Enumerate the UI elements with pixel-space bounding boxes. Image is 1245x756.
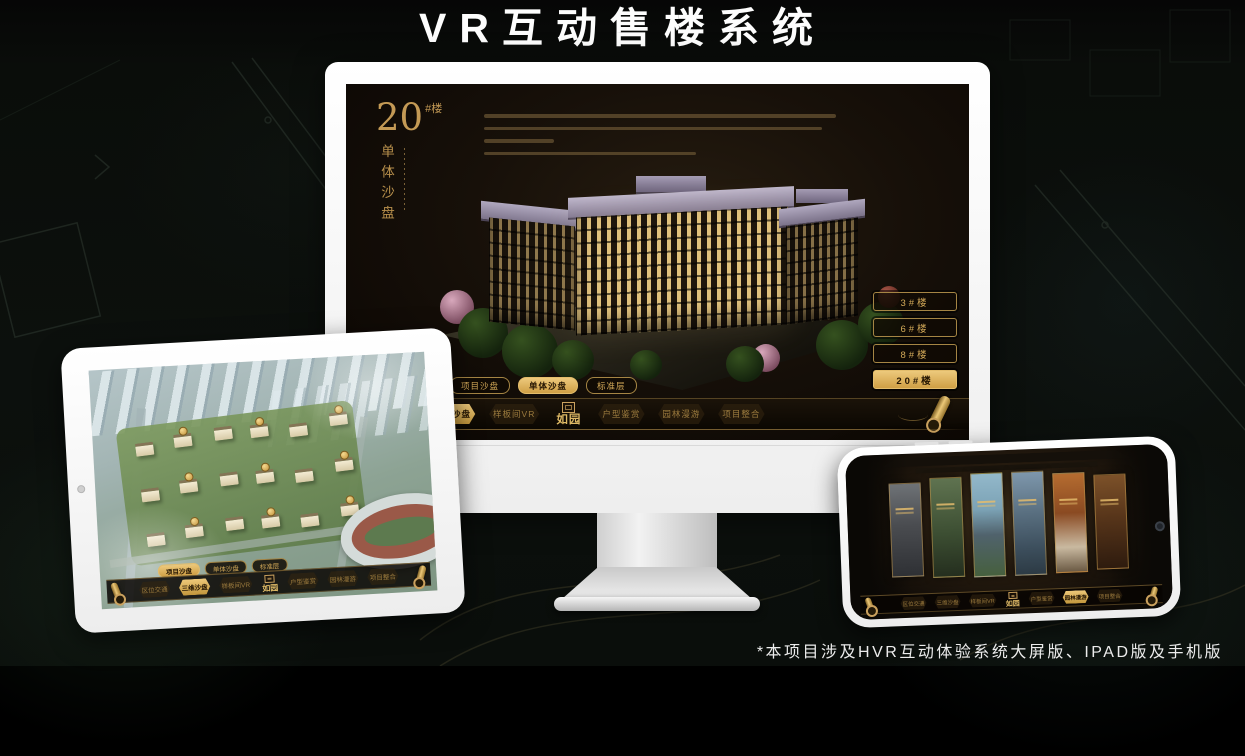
nav-item-garden-tour[interactable]: 园林漫游: [324, 570, 361, 588]
nav-item-garden-tour[interactable]: 园林漫游: [654, 404, 708, 424]
subtab-single-sandbox[interactable]: 单体沙盘: [518, 377, 578, 394]
floor-button-6[interactable]: 6#楼: [873, 318, 957, 337]
building-left-wing: [489, 217, 575, 330]
gallery-panel[interactable]: [1011, 471, 1047, 576]
vertical-caption-decor: [404, 148, 405, 210]
nav-item-showroom-vr[interactable]: 样板间VR: [966, 593, 999, 607]
building-main-facade: [576, 206, 788, 335]
brand-logo: 如园: [1005, 592, 1020, 608]
scroll-handle-right[interactable]: [1149, 586, 1159, 602]
seal-icon: [265, 574, 275, 583]
swoosh-decor: [898, 408, 928, 421]
ipad-camera-icon: [77, 485, 85, 493]
floor-button-20[interactable]: 20#楼: [873, 370, 957, 389]
seal-icon: [562, 402, 575, 413]
scroll-handle-right[interactable]: [415, 564, 427, 584]
nav-item-location[interactable]: 区位交通: [898, 596, 928, 610]
nav-item-showroom-vr[interactable]: 样板间VR: [485, 404, 543, 424]
gallery-panel[interactable]: [1052, 472, 1088, 573]
ipad-device: 项目沙盘 单体沙盘 标准层 区位交通 三维沙盘 样板间VR 如园 户型鉴赏 园林…: [60, 327, 465, 633]
seal-icon: [1008, 592, 1017, 599]
floor-button-8[interactable]: 8#楼: [873, 344, 957, 363]
building-block-title: 20#楼 单体沙盘: [376, 100, 442, 234]
sandbox-subtabs: 项目沙盘 单体沙盘 标准层: [450, 377, 637, 394]
floor-button-3[interactable]: 3#楼: [873, 292, 957, 311]
monitor-stand-base: [554, 597, 760, 611]
nav-item-floorplan[interactable]: 户型鉴赏: [594, 404, 648, 424]
footnote-text: *本项目涉及HVR互动体验系统大屏版、IPAD版及手机版: [757, 638, 1223, 662]
block-number-suffix: #楼: [425, 103, 442, 115]
gallery-panel[interactable]: [929, 477, 965, 578]
nav-item-project-info[interactable]: 项目整合: [364, 567, 401, 585]
nav-item-garden-tour[interactable]: 园林漫游: [1060, 590, 1090, 604]
nav-item-floorplan[interactable]: 户型鉴赏: [285, 572, 322, 590]
description-text-lines: [484, 114, 844, 164]
phone-screen: 区位交通 三维沙盘 样板间VR 如园 户型鉴赏 园林漫游 项目整合: [845, 444, 1173, 620]
subtab-project-sandbox[interactable]: 项目沙盘: [450, 377, 510, 394]
page-title: VR互动售楼系统: [0, 2, 1245, 54]
nav-item-project-info[interactable]: 项目整合: [1094, 589, 1124, 603]
block-subtitle: 单体沙盘: [376, 144, 396, 234]
floor-button-group: 3#楼 6#楼 8#楼 20#楼: [873, 292, 957, 389]
brand-logo: 如园: [556, 402, 581, 426]
gallery-panel[interactable]: [1093, 473, 1129, 569]
nav-item-project-info[interactable]: 项目整合: [714, 404, 768, 424]
nav-item-3d-sandbox[interactable]: 三维沙盘: [176, 578, 213, 596]
volume-button: [914, 442, 938, 446]
gallery-panels: [888, 467, 1129, 580]
nav-item-3d-sandbox[interactable]: 三维沙盘: [932, 595, 962, 609]
nav-item-showroom-vr[interactable]: 样板间VR: [216, 576, 255, 594]
gallery-panel[interactable]: [970, 472, 1006, 577]
subtab-standard-floor[interactable]: 标准层: [586, 377, 637, 394]
nav-item-floorplan[interactable]: 户型鉴赏: [1026, 591, 1056, 605]
monitor-stand-neck: [597, 513, 717, 569]
nav-item-location[interactable]: 区位交通: [136, 580, 173, 598]
monitor-stand-flare: [562, 567, 752, 599]
building-right-wing: [786, 218, 858, 325]
block-number: 20: [376, 96, 423, 139]
scroll-handle-left[interactable]: [110, 581, 123, 601]
scroll-handle-left[interactable]: [864, 597, 875, 613]
volume-button: [948, 440, 972, 444]
brand-logo: 如园: [262, 574, 279, 592]
ipad-screen: 项目沙盘 单体沙盘 标准层 区位交通 三维沙盘 样板间VR 如园 户型鉴赏 园林…: [89, 352, 438, 609]
gallery-panel[interactable]: [889, 482, 925, 577]
building-3d-render: [434, 162, 899, 397]
phone-device: 区位交通 三维沙盘 样板间VR 如园 户型鉴赏 园林漫游 项目整合: [837, 436, 1182, 629]
scroll-menu-icon[interactable]: [927, 394, 952, 429]
